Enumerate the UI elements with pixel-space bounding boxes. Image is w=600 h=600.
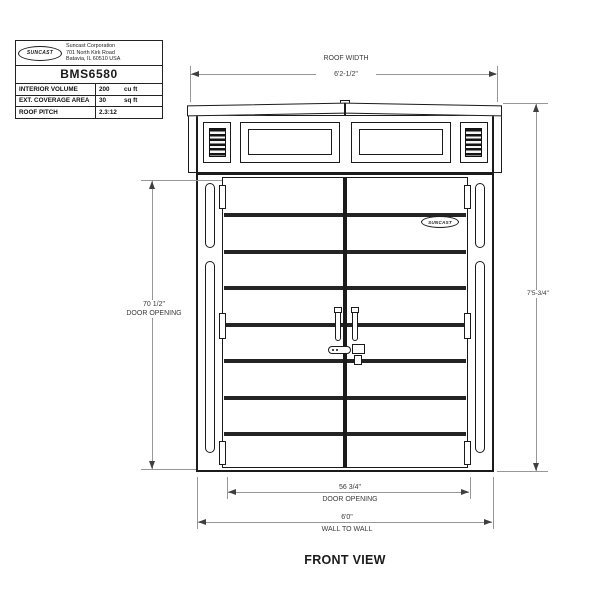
latch-hasp (352, 344, 365, 354)
right-vent-louvers (465, 128, 482, 157)
door-center-divider (343, 177, 347, 468)
spec-value: 30 (95, 96, 121, 107)
door-handle-right (352, 312, 358, 341)
dimension-line-door-height (152, 181, 153, 469)
hinge (219, 185, 226, 209)
latch-rivet (336, 349, 338, 351)
spec-label: EXT. COVERAGE AREA (16, 97, 95, 104)
title-block: SUNCAST Suncast Corporation 701 North Ki… (15, 40, 163, 119)
spec-row: ROOF PITCH 2.3:12 (16, 106, 162, 118)
view-caption: FRONT VIEW (250, 553, 440, 567)
spec-value: 2.3:12 (95, 107, 121, 118)
extension-line (470, 477, 471, 499)
dimension-arrow (198, 519, 206, 525)
dimension-arrow (484, 519, 492, 525)
spec-row: INTERIOR VOLUME 200 cu ft (16, 83, 162, 95)
title-block-header: SUNCAST Suncast Corporation 701 North Ki… (16, 41, 162, 65)
spec-value: 200 (95, 84, 121, 95)
overall-height-value: 7'5-3/4" (508, 290, 568, 298)
door-opening-height-value: 70 1/2" (114, 300, 194, 309)
spec-unit: sq ft (121, 97, 162, 104)
extension-line (497, 471, 548, 472)
corner-trim-groove (475, 183, 485, 248)
extension-line (493, 477, 494, 529)
model-number: BMS6580 (16, 65, 162, 83)
address-line: Batavia, IL 60510 USA (66, 56, 120, 63)
drawing-sheet: SUNCAST Suncast Corporation 701 North Ki… (0, 0, 600, 600)
dimension-arrow (533, 463, 539, 471)
extension-line (503, 103, 548, 104)
address-line: 701 North Kirk Road (66, 50, 120, 57)
hinge (219, 441, 226, 465)
extension-line (141, 469, 196, 470)
door-handle-left (335, 312, 341, 341)
door-suncast-logo-text: SUNCAST (428, 220, 452, 225)
latch-plate (328, 346, 351, 354)
door-opening-width-value: 56 3/4" (318, 483, 382, 492)
dimension-arrow (149, 461, 155, 469)
spec-label: INTERIOR VOLUME (16, 86, 95, 93)
roof-side-cap-right (493, 113, 502, 173)
hinge (464, 313, 471, 339)
roof-width-value: 6'2-1/2" (316, 70, 376, 79)
extension-line (497, 66, 498, 102)
suncast-logo-text: SUNCAST (27, 50, 53, 56)
latch-hasp-loop (354, 355, 362, 365)
spec-label: ROOF PITCH (16, 109, 95, 116)
door-opening-width-label: DOOR OPENING (313, 495, 387, 504)
dimension-line-door-width (228, 492, 469, 493)
company-address: Suncast Corporation 701 North Kirk Road … (66, 43, 120, 63)
corner-trim-groove (205, 183, 215, 248)
transom-window-right-glass (359, 129, 443, 155)
door-suncast-logo: SUNCAST (421, 216, 459, 228)
left-vent-louvers (209, 128, 226, 157)
door-opening-height-text: 70 1/2" DOOR OPENING (112, 300, 196, 318)
address-line: Suncast Corporation (66, 43, 120, 50)
roof-center-seam (344, 104, 346, 116)
hinge (464, 441, 471, 465)
hinge (219, 313, 226, 339)
spec-row: EXT. COVERAGE AREA 30 sq ft (16, 95, 162, 107)
spec-unit: cu ft (121, 86, 162, 93)
dimension-arrow (228, 489, 236, 495)
extension-line (227, 477, 228, 499)
suncast-logo: SUNCAST (18, 46, 62, 61)
dimension-arrow (489, 71, 497, 77)
roof-width-label: ROOF WIDTH (294, 54, 398, 63)
door-opening-height-label: DOOR OPENING (114, 309, 194, 318)
wall-to-wall-label: WALL TO WALL (310, 525, 384, 534)
corner-trim-groove (205, 261, 215, 453)
dimension-line-overall-height (536, 104, 537, 471)
dimension-arrow (149, 181, 155, 189)
dimension-arrow (191, 71, 199, 77)
hinge (464, 185, 471, 209)
wall-to-wall-value: 6'0" (325, 513, 369, 522)
roof-side-cap-left (188, 113, 197, 173)
corner-trim-groove (475, 261, 485, 453)
dimension-arrow (533, 104, 539, 112)
dimension-line-wall-to-wall (198, 522, 492, 523)
dimension-arrow (461, 489, 469, 495)
latch-rivet (332, 349, 334, 351)
transom-window-left-glass (248, 129, 332, 155)
